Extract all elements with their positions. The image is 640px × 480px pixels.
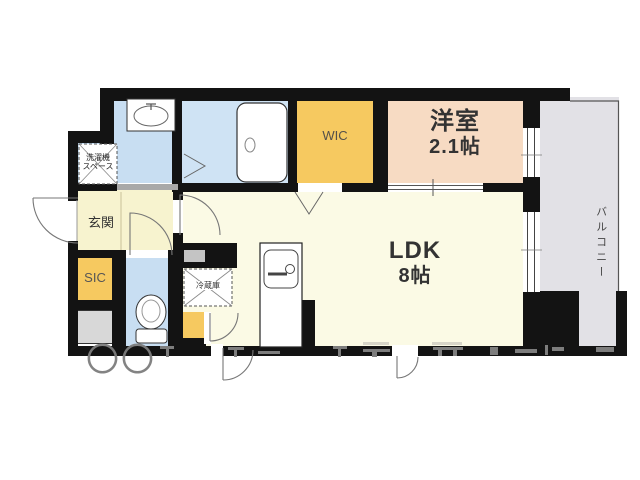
washer-space-label: 洗濯機 スペース [78,153,118,171]
outside-door-arc [223,348,253,380]
balcony-label: バルコニー [594,178,607,308]
storage-block [181,312,204,345]
genkan-label: 玄関 [78,216,124,231]
ldk-area [183,192,523,346]
wic-label: WIC [300,129,370,144]
sic-label: SIC [77,271,113,286]
western-room-label: 洋室 2.1帖 [395,108,515,159]
ldk-label: LDK 8帖 [360,237,470,288]
floor-plan: 洗濯機 スペース 玄関 SIC WIC 洋室 2.1帖 LDK 8帖 冷蔵庫 バ… [0,0,640,480]
fridge-label: 冷蔵庫 [186,281,230,290]
outside-door-arc [397,356,418,378]
entrance-door-arc [33,198,78,243]
watermark: 〇〇 [86,333,156,381]
bathroom-area [182,95,288,183]
